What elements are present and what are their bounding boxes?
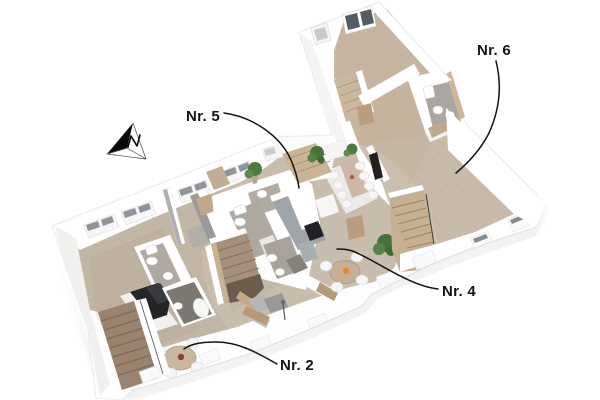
svg-text:Nr. 4: Nr. 4	[442, 283, 476, 300]
svg-text:Nr. 5: Nr. 5	[186, 108, 220, 125]
svg-text:Nr. 2: Nr. 2	[280, 357, 314, 374]
svg-text:Nr. 6: Nr. 6	[477, 42, 511, 59]
